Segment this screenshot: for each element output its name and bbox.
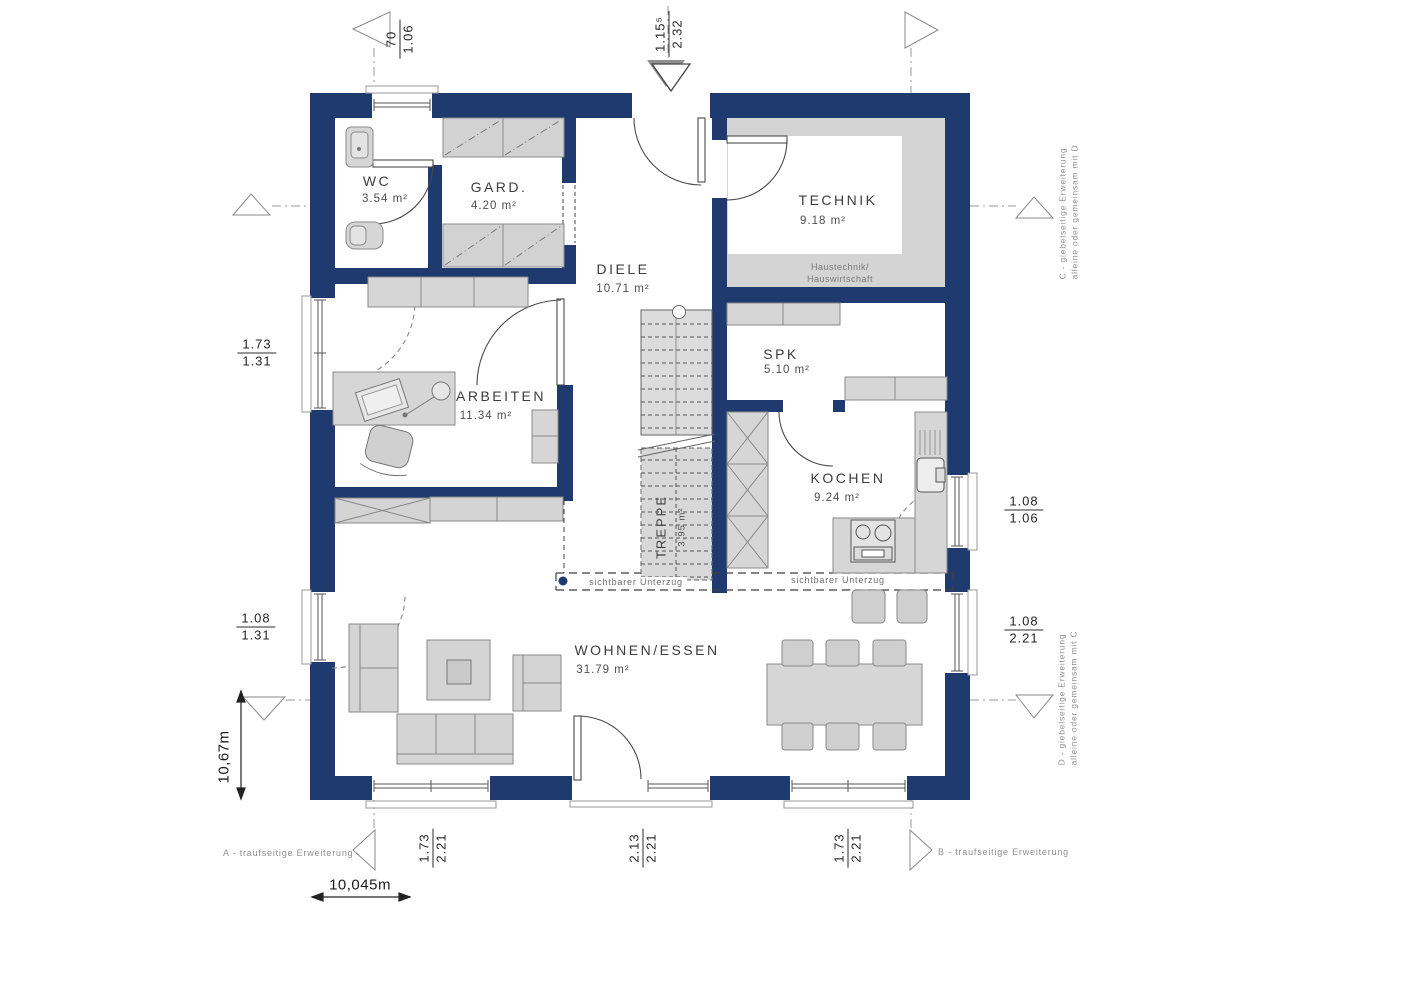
beam-label-right: sichtbarer Unterzug <box>787 575 889 585</box>
room-area-kochen: 9.24 m² <box>814 492 860 504</box>
room-area-diele: 10.71 m² <box>596 283 649 295</box>
tall-cabinets <box>727 412 768 568</box>
dim-left-lower: 1.08 1.31 <box>236 611 275 644</box>
technik-note-line2: Hauswirtschaft <box>807 274 873 284</box>
dim-bottom-right: 1.73 2.21 <box>832 828 865 867</box>
dim-right-upper: 1.08 1.06 <box>1004 494 1043 527</box>
dim-value: 2.13 <box>627 828 643 867</box>
dim-value: 1.73 <box>832 828 848 867</box>
total-height-arrow <box>237 691 245 799</box>
room-label-arbeiten: ARBEITEN <box>456 388 546 404</box>
room-area-spk: 5.10 m² <box>764 364 810 376</box>
extension-c-label: C - giebelseitige Erweiterungalleine ode… <box>1058 145 1081 280</box>
entrance-marker <box>647 60 690 91</box>
bar-chairs <box>852 590 927 623</box>
dim-bottom-left: 1.73 2.21 <box>417 828 450 867</box>
dim-value: 2.21 <box>1004 630 1043 647</box>
extension-d-line2: alleine oder gemeinsam mit C <box>1068 631 1078 766</box>
room-area-gard: 4.20 m² <box>471 200 517 212</box>
marker-left-lower <box>243 697 285 720</box>
dim-value: 1.73 <box>417 828 433 867</box>
wc-sink <box>346 127 373 167</box>
floor-plan-drawing <box>0 0 1414 1000</box>
office-chair <box>359 423 417 480</box>
dim-value: 1.08 <box>1004 494 1043 510</box>
beam-dot <box>559 577 568 586</box>
marker-right-upper <box>1016 197 1053 218</box>
terrace-door <box>574 716 641 780</box>
technik-note-line1: Haustechnik/ <box>811 262 869 272</box>
room-label-treppe: TREPPE <box>654 495 669 559</box>
extension-d-label: D - giebelseitige Erweiterungalleine ode… <box>1057 631 1080 766</box>
kitchen-sink <box>917 458 945 492</box>
dim-value: 1.08 <box>1004 614 1043 630</box>
sideboard <box>368 277 528 307</box>
office-furniture <box>333 277 558 479</box>
living-furniture <box>335 497 563 764</box>
sofa-main <box>397 714 513 764</box>
extension-d-line1: D - giebelseitige Erweiterung <box>1057 634 1067 766</box>
coffee-table <box>427 640 490 700</box>
marker-left-upper <box>233 194 270 215</box>
wc-toilet <box>346 222 383 249</box>
dim-bottom-center: 2.13 2.21 <box>627 828 660 867</box>
dim-value: 1.15⁵ <box>653 11 669 57</box>
stove <box>851 520 895 562</box>
total-width-label: 10,045m <box>329 877 391 894</box>
sofa-left <box>349 624 398 712</box>
room-label-technik: TECHNIK <box>799 192 878 208</box>
room-area-wc: 3.54 m² <box>362 193 408 205</box>
dim-right-lower: 1.08 2.21 <box>1004 614 1043 647</box>
dim-value: 1.06 <box>1004 510 1043 527</box>
room-label-kochen: KOCHEN <box>811 470 886 486</box>
stairs-newel <box>673 306 686 319</box>
dim-value: 70 <box>384 19 400 58</box>
armchair <box>513 655 561 711</box>
room-label-wc: WC <box>363 173 391 189</box>
marker-top-right <box>905 12 938 48</box>
beam-label-left: sichtbarer Unterzug <box>585 577 687 587</box>
dining-furniture <box>767 590 927 750</box>
dim-value: 1.31 <box>237 353 276 370</box>
room-label-spk: SPK <box>763 346 799 362</box>
wc-door <box>373 160 433 224</box>
room-label-wohnen-essen: WOHNEN/ESSEN <box>574 642 719 658</box>
kitchen-fixtures <box>727 303 947 573</box>
arbeiten-door <box>477 299 564 385</box>
dim-top-left: 70 1.06 <box>384 19 417 58</box>
entrance-door <box>634 118 705 185</box>
room-area-technik: 9.18 m² <box>800 215 846 227</box>
marker-bottom-right <box>910 830 932 870</box>
dim-value: 1.31 <box>236 627 275 644</box>
dim-top-entry: 1.15⁵ 2.32 <box>653 11 686 57</box>
room-area-wohnen-essen: 31.79 m² <box>576 664 629 676</box>
dim-value: 2.21 <box>643 828 660 867</box>
room-area-treppe: 3.95 m² <box>677 507 688 546</box>
marker-right-lower <box>1016 695 1053 718</box>
total-height-label: 10,67m <box>216 730 233 783</box>
extension-b-label: B - traufseitige Erweiterung <box>938 847 1069 857</box>
spk-door <box>779 412 833 466</box>
spk-shelves <box>727 303 947 400</box>
dim-value: 2.21 <box>433 828 450 867</box>
dim-value: 2.21 <box>848 828 865 867</box>
dim-value: 1.06 <box>400 19 417 58</box>
extension-a-label: A - traufseitige Erweiterung <box>223 848 353 858</box>
room-label-gard: GARD. <box>471 179 528 195</box>
dining-table <box>767 664 922 725</box>
lowboard <box>335 497 563 523</box>
marker-bottom-left <box>353 830 375 870</box>
dim-left-upper: 1.73 1.31 <box>237 337 276 370</box>
extension-c-line2: alleine oder gemeinsam mit D <box>1069 145 1079 280</box>
room-area-arbeiten: 11.34 m² <box>460 410 513 422</box>
dim-value: 2.32 <box>669 11 686 57</box>
floor-plan: WC 3.54 m² GARD. 4.20 m² DIELE 10.71 m² … <box>0 0 1414 1000</box>
extension-c-line1: C - giebelseitige Erweiterung <box>1058 148 1068 280</box>
dim-value: 1.08 <box>236 611 275 627</box>
dim-value: 1.73 <box>237 337 276 353</box>
room-label-diele: DIELE <box>597 261 650 277</box>
total-width-arrow <box>312 893 410 901</box>
side-cabinet <box>532 410 558 463</box>
technik-note: Haustechnik/Hauswirtschaft <box>807 261 873 285</box>
